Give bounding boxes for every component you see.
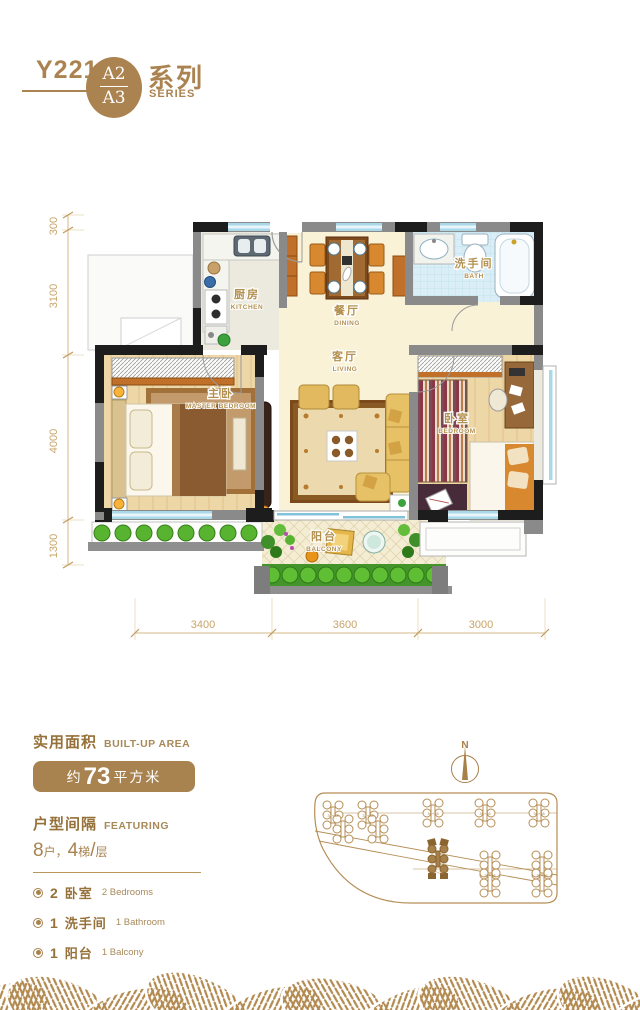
dim-bottom-3000: 3000 — [469, 619, 493, 631]
room-label-bedroom-en: BEDROOM — [438, 428, 475, 435]
master-bedroom-furniture — [112, 358, 256, 511]
feature-bedrooms: 2 卧室 2 Bedrooms — [33, 883, 273, 902]
site-plan: N 37+38 37+38 36+38 36+38 36+38 37+38 — [293, 733, 625, 918]
series-badge-bottom: A3 — [86, 90, 142, 107]
room-label-living-zh: 客厅 — [331, 349, 358, 363]
series-badge-divider — [100, 86, 128, 87]
room-label-master-en: MASTER BEDROOM — [186, 403, 256, 410]
dim-left-3100: 3100 — [48, 284, 60, 308]
floor-plan: 厨房 KITCHEN 餐厅 DINING 客厅 LIVING 洗手间 BATH … — [0, 190, 640, 665]
info-divider — [33, 872, 201, 873]
featuring-title: 户型间隔 FEATURING — [33, 813, 273, 834]
room-label-bath-zh: 洗手间 — [455, 256, 494, 270]
brochure-page: Y221 A2 A3 系列 SERIES — [0, 0, 640, 1010]
building-label: 37+38 — [362, 813, 374, 818]
building-label: 36+38 — [479, 811, 491, 816]
area-badge: 约 73 平方米 — [33, 761, 195, 792]
series-badge-top: A2 — [86, 57, 142, 83]
building-label: 37+38 — [432, 870, 444, 875]
room-label-dining-en: DINING — [334, 320, 360, 327]
feature-balcony: 1 阳台 1 Balcony — [33, 943, 273, 962]
room-label-bedroom-zh: 卧室 — [444, 411, 470, 425]
lifts-count: 4 — [68, 840, 79, 861]
series-title-en: SERIES — [149, 88, 195, 100]
decorative-leaf-band — [0, 968, 640, 1010]
area-value: 73 — [84, 765, 111, 789]
room-label-kitchen-zh: 厨房 — [234, 287, 260, 301]
area-title-en: BUILT-UP AREA — [104, 738, 190, 750]
room-label-kitchen-en: KITCHEN — [231, 304, 263, 311]
room-label-living-en: LIVING — [333, 366, 358, 373]
room-label-balcony-en: BALCONY — [306, 546, 342, 553]
featuring-title-zh: 户型间隔 — [33, 813, 97, 834]
building-label: 36+38 — [533, 811, 545, 816]
dim-bottom-3400: 3400 — [191, 619, 215, 631]
bullet-icon — [33, 888, 43, 898]
series-badge: A2 A3 — [86, 57, 142, 118]
area-approx: 约 — [67, 767, 81, 787]
dim-left-4000: 4000 — [48, 429, 60, 453]
dim-left-300: 300 — [48, 217, 60, 235]
dim-left-1300: 1300 — [48, 534, 60, 558]
feature-bathroom: 1 洗手间 1 Bathroom — [33, 913, 273, 932]
building-label: 37+38 — [327, 813, 339, 818]
room-label-dining-zh: 餐厅 — [333, 303, 360, 317]
built-up-area-title: 实用面积 BUILT-UP AREA — [33, 731, 273, 752]
units-count: 8 — [33, 840, 44, 861]
room-label-master-zh: 主卧 — [208, 386, 234, 400]
room-label-balcony-zh: 阳台 — [311, 529, 337, 543]
north-compass: N — [452, 740, 479, 783]
room-label-bath-en: BATH — [464, 273, 484, 280]
area-unit: 平方米 — [113, 767, 161, 787]
area-title-zh: 实用面积 — [33, 731, 97, 752]
dim-bottom-3600: 3600 — [333, 619, 357, 631]
featuring-title-en: FEATURING — [104, 820, 169, 832]
bullet-icon — [33, 948, 43, 958]
info-panel: 实用面积 BUILT-UP AREA 约 73 平方米 户型间隔 FEATURI… — [33, 731, 273, 973]
building-label: 37+38 — [536, 873, 548, 878]
units-per-floor: 8户，4梯/层 — [33, 840, 273, 862]
building-label: 37+38 — [484, 873, 496, 878]
building-label: 36+38 — [427, 811, 439, 816]
bullet-icon — [33, 918, 43, 928]
code-underline — [22, 90, 90, 92]
